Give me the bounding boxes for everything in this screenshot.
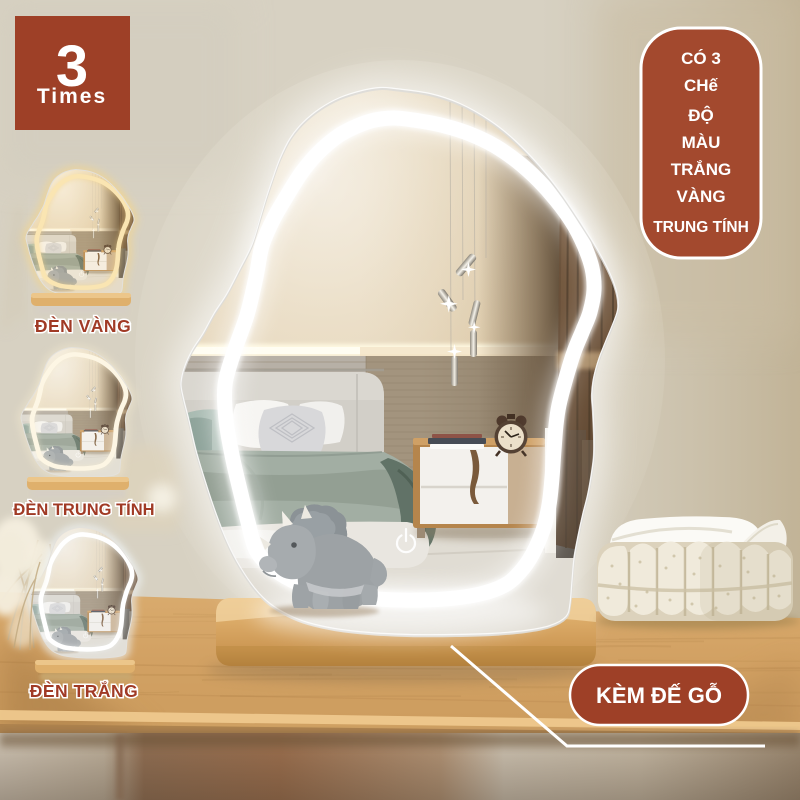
svg-text:ĐÈN TRUNG TÍNH: ĐÈN TRUNG TÍNH bbox=[13, 500, 154, 519]
svg-text:Times: Times bbox=[37, 85, 107, 108]
svg-text:TRUNG TÍNH: TRUNG TÍNH bbox=[653, 219, 749, 236]
svg-text:ĐÈN TRẮNG: ĐÈN TRẮNG bbox=[30, 680, 139, 701]
svg-text:ĐỘ: ĐỘ bbox=[688, 106, 714, 125]
svg-text:CÓ 3: CÓ 3 bbox=[681, 49, 721, 68]
svg-text:TRẮNG: TRẮNG bbox=[671, 160, 731, 179]
svg-text:KÈM ĐẾ GỖ: KÈM ĐẾ GỖ bbox=[596, 682, 722, 708]
svg-text:VÀNG: VÀNG bbox=[676, 187, 725, 206]
svg-text:ĐÈN VÀNG: ĐÈN VÀNG bbox=[35, 315, 131, 336]
svg-text:MÀU: MÀU bbox=[682, 133, 721, 152]
svg-text:CHế: CHế bbox=[684, 76, 719, 95]
